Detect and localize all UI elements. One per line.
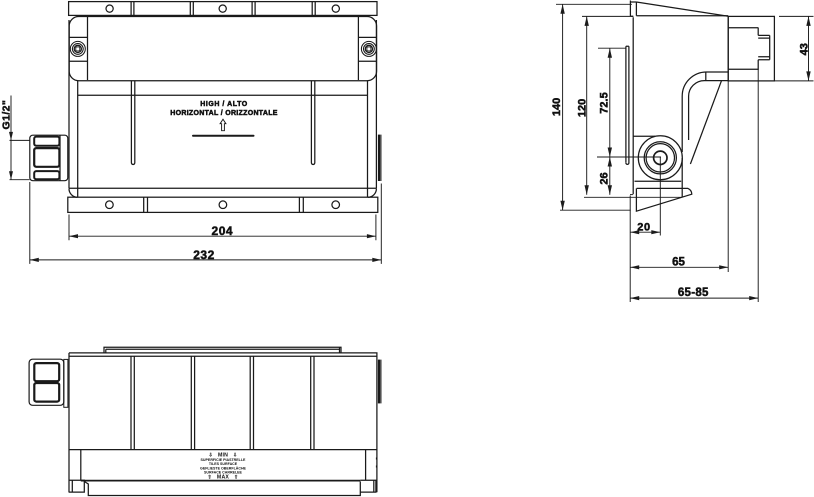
svg-text:232: 232 bbox=[193, 248, 215, 262]
svg-text:HORIZONTAL / ORIZZONTALE: HORIZONTAL / ORIZZONTALE bbox=[170, 110, 278, 117]
svg-text:26: 26 bbox=[599, 172, 611, 184]
svg-text:65: 65 bbox=[672, 256, 685, 268]
svg-text:⇧ MAX ⇧: ⇧ MAX ⇧ bbox=[207, 475, 238, 481]
svg-text:20: 20 bbox=[637, 222, 650, 234]
svg-text:65-85: 65-85 bbox=[678, 287, 709, 299]
svg-text:120: 120 bbox=[576, 99, 588, 117]
svg-text:G1/2": G1/2" bbox=[0, 100, 12, 130]
svg-text:43: 43 bbox=[798, 43, 810, 55]
svg-text:72.5: 72.5 bbox=[599, 92, 611, 113]
svg-text:140: 140 bbox=[551, 98, 563, 116]
svg-text:HIGH / ALTO: HIGH / ALTO bbox=[200, 101, 248, 108]
svg-text:204: 204 bbox=[212, 224, 234, 238]
